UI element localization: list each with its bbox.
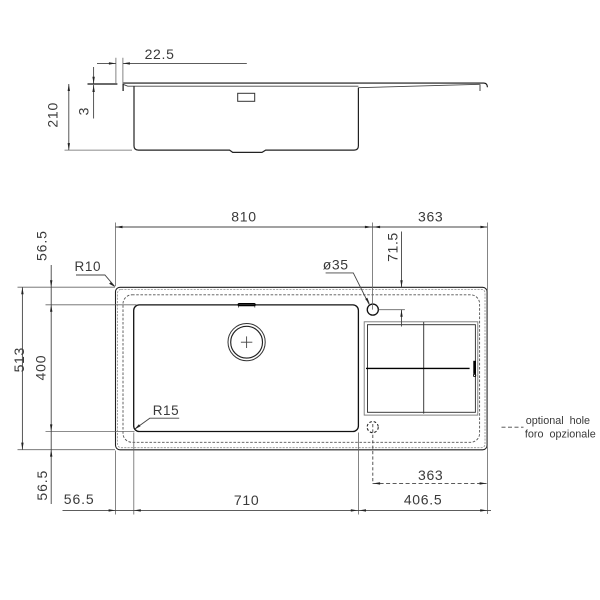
svg-text:363: 363 — [418, 467, 443, 483]
svg-text:22.5: 22.5 — [145, 46, 175, 62]
svg-text:56.5: 56.5 — [34, 230, 50, 261]
svg-text:363: 363 — [418, 208, 443, 224]
svg-text:56.5: 56.5 — [64, 491, 95, 507]
svg-text:3: 3 — [76, 107, 92, 115]
svg-text:210: 210 — [45, 102, 61, 128]
svg-text:foro opzionale: foro opzionale — [525, 428, 596, 440]
svg-text:56.5: 56.5 — [34, 470, 50, 501]
svg-text:710: 710 — [234, 492, 259, 508]
svg-text:810: 810 — [231, 209, 256, 225]
svg-text:71.5: 71.5 — [384, 232, 400, 262]
svg-text:R10: R10 — [75, 259, 102, 274]
svg-text:406.5: 406.5 — [404, 491, 443, 507]
svg-text:optional hole: optional hole — [526, 415, 590, 427]
svg-text:400: 400 — [33, 355, 49, 381]
svg-text:R15: R15 — [153, 403, 180, 418]
svg-text:513: 513 — [11, 347, 27, 372]
svg-text:ø35: ø35 — [323, 257, 349, 273]
